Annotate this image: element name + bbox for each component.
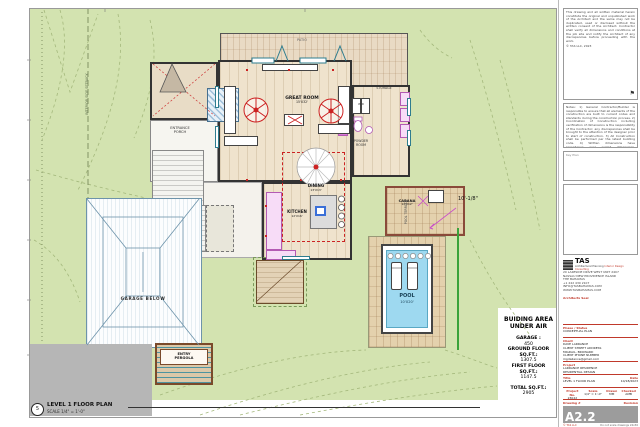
copyright-text: This drawing and all written material he… bbox=[566, 11, 635, 43]
garage-below-label: GARAGE BELOW bbox=[103, 296, 183, 301]
view-title-bubble: 5 bbox=[31, 403, 44, 416]
pool-terrace-label: POOL TERRACE bbox=[404, 192, 408, 232]
storage-label: STORAGE bbox=[366, 86, 402, 90]
wd-label: W.D bbox=[352, 102, 370, 106]
pool-size: 10'X20' bbox=[386, 300, 428, 304]
project-section: Project LARRANCE RESIDENCE RESIDENTIAL D… bbox=[563, 361, 638, 375]
key-plan-box: Key Plan bbox=[563, 151, 638, 181]
date-value: 10/18/2023 bbox=[609, 380, 638, 384]
revision-label: Revision bbox=[624, 401, 638, 405]
total-sqft-value: 2905 bbox=[500, 391, 557, 397]
view-scale: SCALE 1/4" = 1'-0" bbox=[47, 409, 85, 414]
dimension-label: 10'-1/8" bbox=[458, 196, 498, 202]
ground-floor-label: GROUND FLOOR bbox=[500, 347, 557, 353]
great-room-size: 15'X32' bbox=[270, 101, 334, 105]
address-line: WWW.TASBAHAMAS.COM bbox=[563, 289, 638, 293]
copyright-box: This drawing and all written material he… bbox=[563, 8, 638, 100]
architects-seal-label: Architects Seal bbox=[563, 296, 638, 300]
title-value: LEVEL 1 FLOOR PLAN bbox=[563, 380, 609, 384]
phase-value: CONCEPTUAL PLAN bbox=[563, 330, 638, 334]
phase-section: Phase / Status CONCEPTUAL PLAN bbox=[563, 324, 638, 334]
seal-box bbox=[563, 184, 638, 255]
logo-text: TAS bbox=[575, 258, 638, 265]
drawing-number-row: Drawing # Revision A2.2 © TAS LLC Do not… bbox=[563, 399, 638, 427]
first-floor-value: 1147.5 bbox=[500, 375, 557, 381]
title-rule bbox=[128, 407, 480, 408]
dining-size: 13'X13' bbox=[300, 189, 332, 192]
dining-label: DINING 13'X13' bbox=[300, 184, 332, 192]
kitchen-size: 12'X16' bbox=[280, 215, 314, 218]
general-notes-text: Notes: 1) General Contractor/Builder is … bbox=[566, 106, 635, 148]
sheet-number-box: A2.2 bbox=[563, 406, 638, 423]
checked-value: AMB bbox=[619, 393, 638, 397]
setback-label: INTERIOR SIDE SETBACK bbox=[85, 53, 89, 115]
area-title-1: BUIDING AREA bbox=[500, 316, 557, 323]
area-title-2: UNDER AIR bbox=[500, 323, 557, 330]
sheet-number: A2.2 bbox=[563, 410, 596, 424]
client-section: Client DAVE LARRANCE CLIENT STREET ADDRE… bbox=[563, 337, 638, 362]
key-plan-label: Key Plan bbox=[566, 154, 635, 158]
scale-value: 1/4" = 1'-0" bbox=[582, 393, 605, 397]
area-summary: BUIDING AREA UNDER AIR GARAGE : 450 GROU… bbox=[500, 316, 557, 397]
pool-label: POOL 10'X20' bbox=[386, 294, 428, 304]
general-notes-box: Notes: 1) General Contractor/Builder is … bbox=[563, 103, 638, 148]
powder-line2: ROOM bbox=[348, 144, 374, 148]
entry-pergola-label: ENTRY PERGOLA bbox=[160, 349, 208, 365]
great-room-label: GREAT ROOM 15'X32' bbox=[270, 96, 334, 105]
title-date-row: Title LEVEL 1 FLOOR PLAN Date 10/18/2023 bbox=[563, 374, 638, 384]
stamp-icon: ⚑ bbox=[630, 90, 635, 97]
entrance-porch-line2: PORCH bbox=[152, 130, 208, 134]
floor-plan-sheet: PATIO GREAT ROOM 15'X32' ENTRANCE PORCH … bbox=[0, 0, 640, 427]
logo-icon bbox=[563, 260, 573, 270]
copyright-signature: © TAS LLC, 2023 bbox=[566, 45, 635, 49]
entrance-porch-label: ENTRANCE PORCH bbox=[152, 126, 208, 134]
view-title: LEVEL 1 FLOOR PLAN bbox=[47, 402, 112, 408]
kitchen-label: KITCHEN 12'X16' bbox=[280, 210, 314, 218]
pergola-line2: PERGOLA bbox=[161, 356, 207, 360]
drawing-number-label: Drawing # bbox=[563, 401, 624, 405]
patio-label: PATIO bbox=[282, 38, 322, 42]
powder-room-label: POWDER ROOM bbox=[348, 140, 374, 147]
drawn-value: MM bbox=[604, 393, 619, 397]
firm-address: 20 LAKESIDE DRIVE WEST UNIT 2407 NASSAU … bbox=[563, 271, 638, 293]
